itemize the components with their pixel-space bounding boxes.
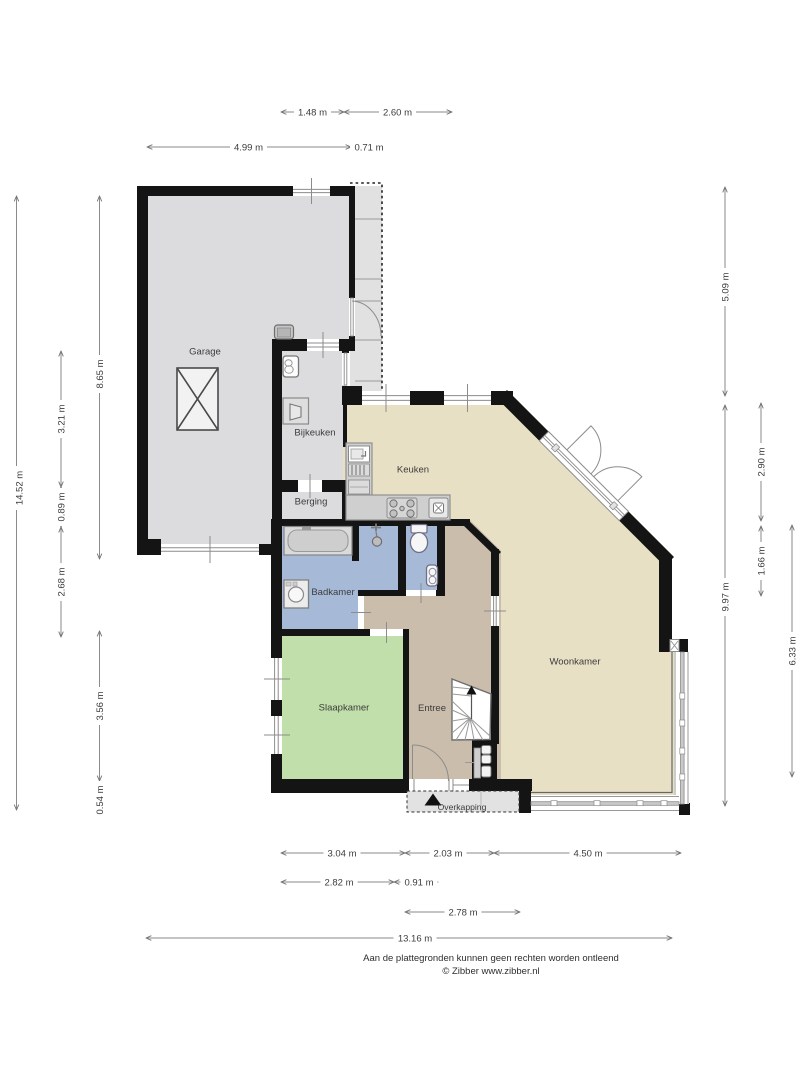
svg-text:0.91 m: 0.91 m [404, 877, 433, 888]
svg-text:Entree: Entree [418, 703, 446, 714]
svg-text:© Zibber www.zibber.nl: © Zibber www.zibber.nl [442, 966, 539, 977]
svg-text:Slaapkamer: Slaapkamer [319, 702, 370, 713]
svg-text:Berging: Berging [295, 496, 328, 507]
svg-text:2.78 m: 2.78 m [448, 907, 477, 918]
svg-text:Garage: Garage [189, 346, 221, 357]
svg-text:5.09 m: 5.09 m [720, 272, 731, 301]
svg-text:2.60 m: 2.60 m [383, 107, 412, 118]
svg-text:3.21 m: 3.21 m [56, 404, 67, 433]
svg-text:9.97 m: 9.97 m [720, 582, 731, 611]
svg-text:13.16 m: 13.16 m [398, 933, 432, 944]
svg-text:Keuken: Keuken [397, 464, 429, 475]
svg-text:3.04 m: 3.04 m [327, 848, 356, 859]
svg-text:0.54 m: 0.54 m [95, 785, 106, 814]
svg-text:4.99 m: 4.99 m [234, 142, 263, 153]
svg-text:2.03 m: 2.03 m [433, 848, 462, 859]
svg-text:2.90 m: 2.90 m [756, 447, 767, 476]
svg-text:8.65 m: 8.65 m [95, 359, 106, 388]
svg-text:Bijkeuken: Bijkeuken [294, 427, 335, 438]
svg-text:Badkamer: Badkamer [311, 587, 354, 598]
svg-text:Overkapping: Overkapping [438, 802, 487, 812]
svg-text:6.33 m: 6.33 m [787, 636, 798, 665]
svg-text:1.48 m: 1.48 m [298, 107, 327, 118]
svg-text:0.71 m: 0.71 m [354, 142, 383, 153]
svg-text:1.66 m: 1.66 m [756, 546, 767, 575]
svg-text:14.52 m: 14.52 m [14, 471, 25, 505]
svg-text:3.56 m: 3.56 m [95, 691, 106, 720]
svg-text:0.89 m: 0.89 m [56, 492, 67, 521]
svg-text:2.82 m: 2.82 m [324, 877, 353, 888]
svg-text:Aan de plattegronden kunnen ge: Aan de plattegronden kunnen geen rechten… [363, 953, 619, 964]
svg-text:2.68 m: 2.68 m [56, 567, 67, 596]
svg-text:Woonkamer: Woonkamer [549, 656, 600, 667]
svg-text:4.50 m: 4.50 m [573, 848, 602, 859]
